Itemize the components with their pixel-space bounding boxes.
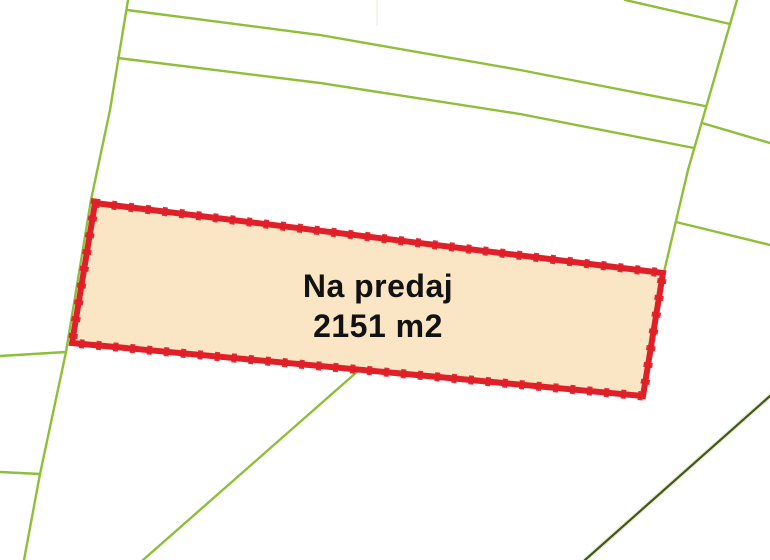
boundary-right-branch-lower bbox=[676, 222, 770, 245]
boundary-right-steep bbox=[664, 0, 737, 272]
boundary-left-stub-lower bbox=[0, 472, 40, 474]
boundary-left-stub-upper bbox=[0, 352, 66, 356]
cadastral-map-canvas bbox=[0, 0, 770, 560]
cadastral-map: Na predaj 2151 m2 bbox=[0, 0, 770, 560]
boundary-lower-diagonal bbox=[143, 371, 358, 560]
boundary-top-right bbox=[625, 0, 730, 24]
boundary-dark-diagonal bbox=[585, 396, 770, 560]
boundary-upper-2 bbox=[118, 58, 694, 148]
boundary-upper-1 bbox=[127, 10, 705, 106]
boundary-right-branch-upper bbox=[702, 123, 770, 143]
